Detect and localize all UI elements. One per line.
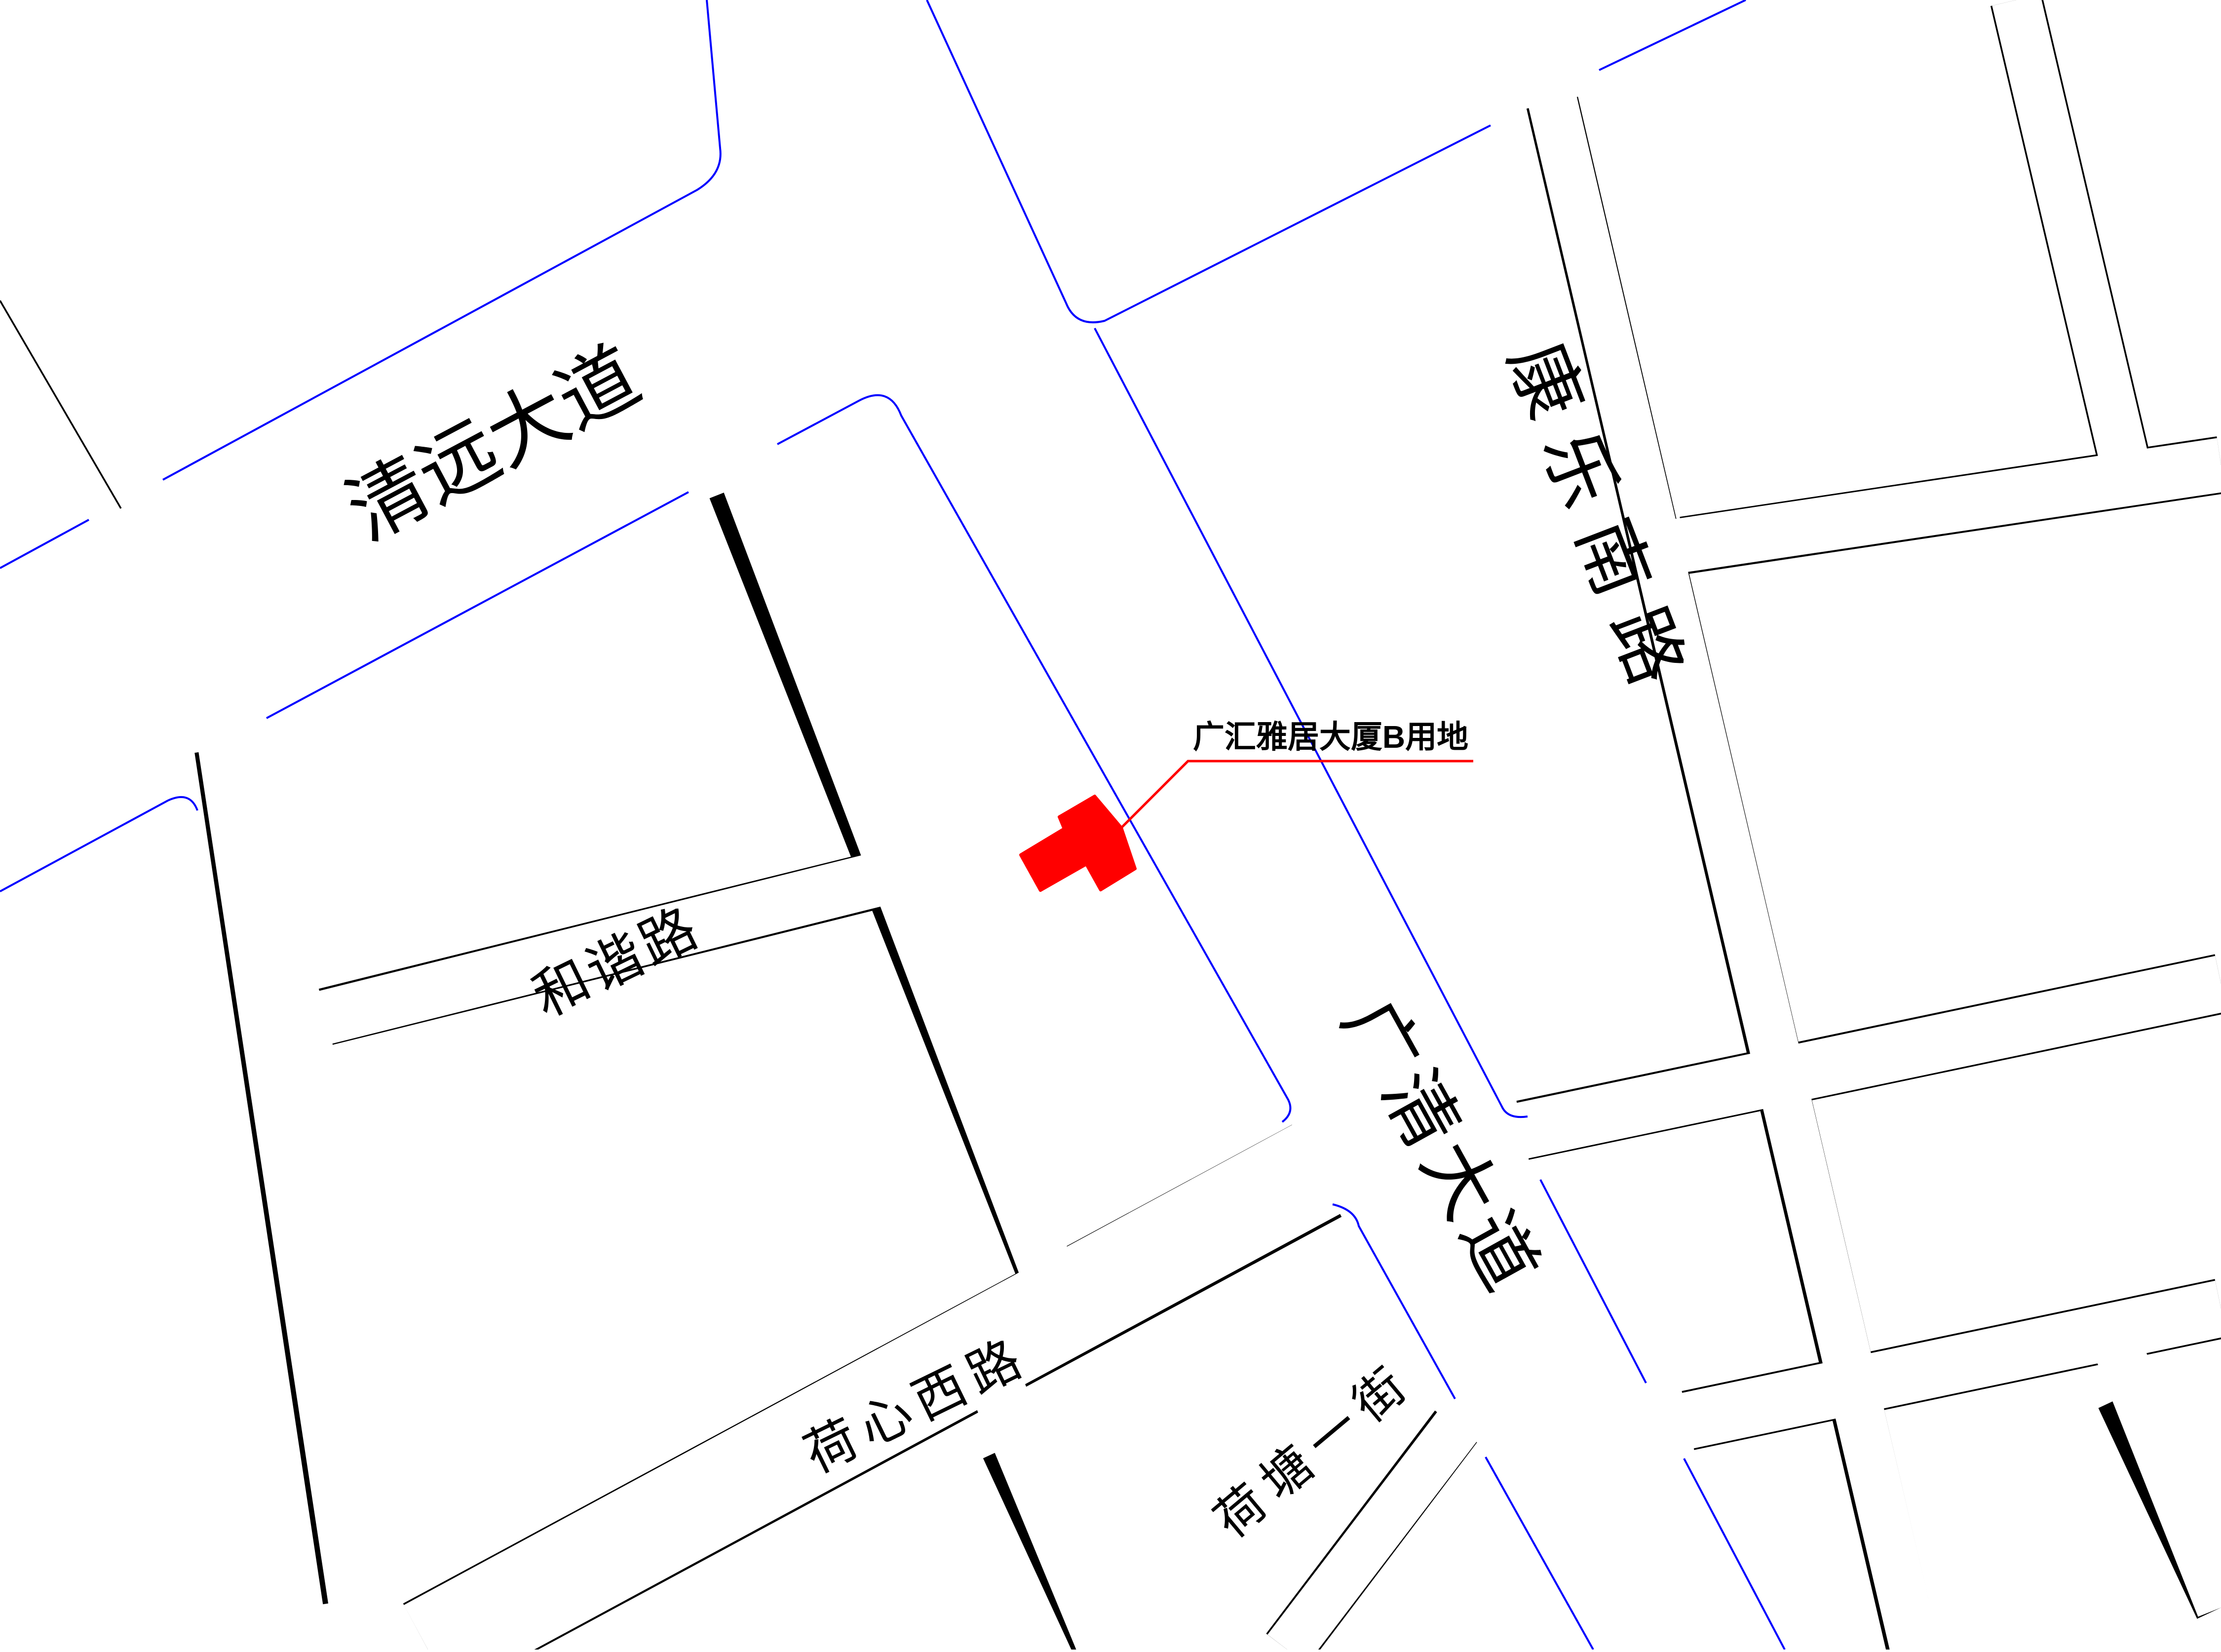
location-map: 清远大道康乐南路和谐路广清大道荷心西路荷塘一街广汇雅居大厦B用地 xyxy=(0,0,2221,1652)
map-canvas: 清远大道康乐南路和谐路广清大道荷心西路荷塘一街广汇雅居大厦B用地 xyxy=(0,0,2221,1650)
site-parcel-label: 广汇雅居大厦B用地 xyxy=(1193,719,1468,755)
